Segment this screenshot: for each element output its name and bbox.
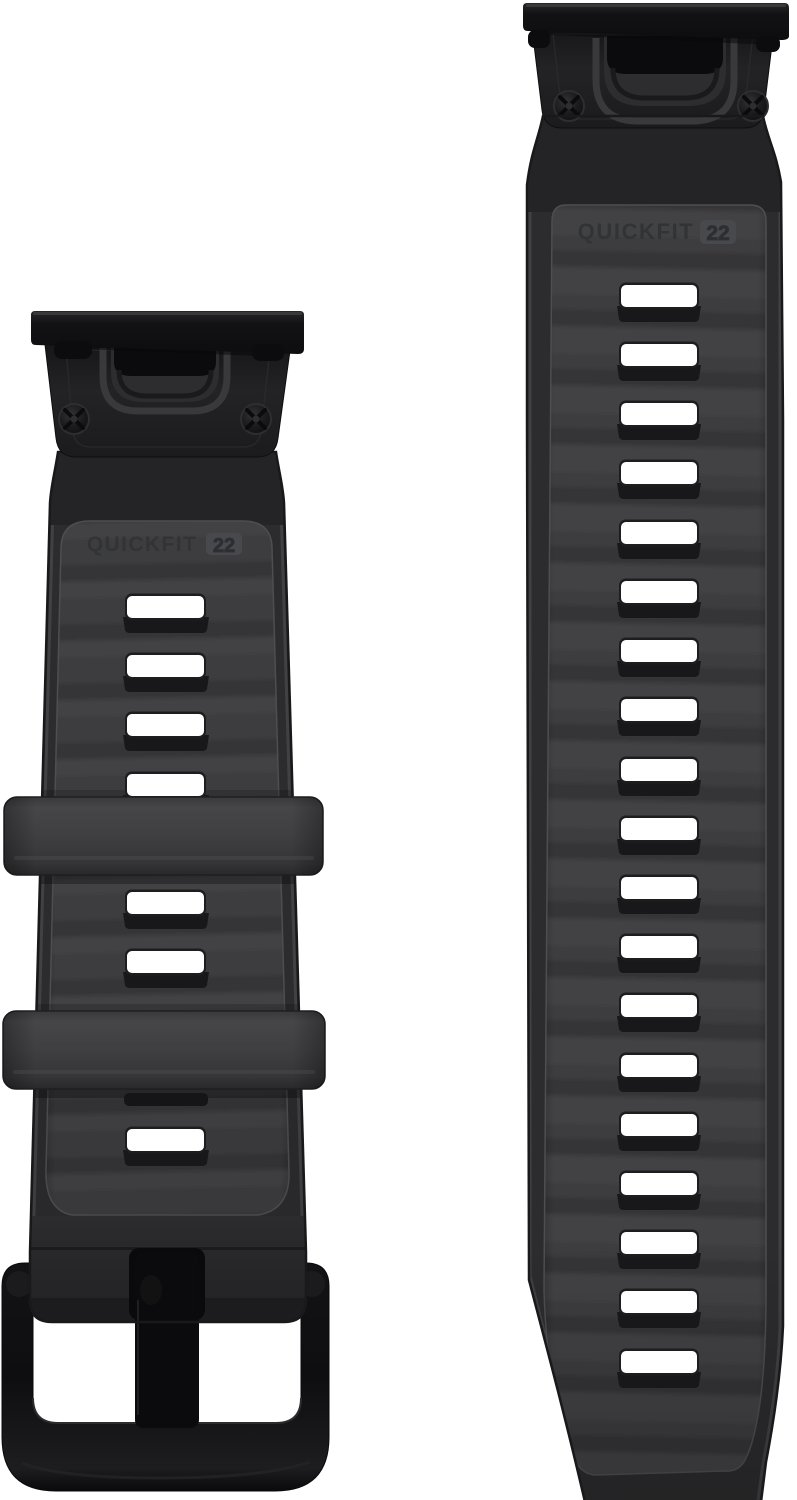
svg-text:QUICKFIT: QUICKFIT (578, 219, 695, 244)
svg-text:22: 22 (706, 222, 729, 245)
svg-text:QUICKFIT: QUICKFIT (87, 533, 197, 556)
svg-text:22: 22 (213, 535, 235, 557)
